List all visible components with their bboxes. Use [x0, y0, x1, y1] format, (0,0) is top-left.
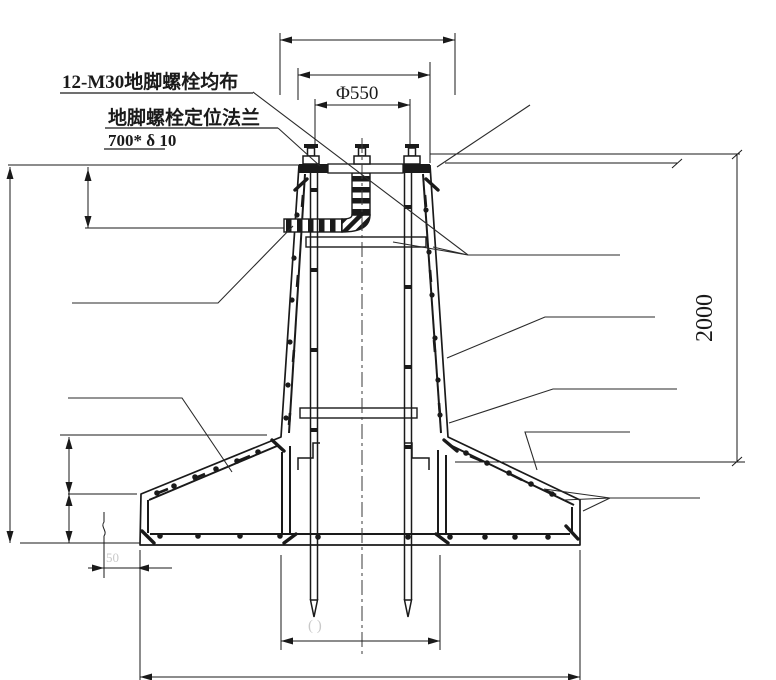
upper-ring-plate	[306, 237, 426, 247]
left-lower-template	[298, 443, 320, 470]
flange-right-section	[403, 164, 430, 173]
flange-left-section	[299, 164, 328, 173]
leader-right-slope	[525, 432, 630, 470]
leader-right-wall-lower	[449, 389, 677, 423]
edge-offset-dim-text: 50	[106, 550, 119, 565]
anchor-bolts-label: 12-M30地脚螺栓均布	[62, 70, 238, 93]
leader-lines	[68, 92, 700, 511]
depth-dim-text: 2000	[692, 294, 718, 342]
conduit-elbow	[342, 215, 370, 232]
cage-plates	[300, 237, 426, 418]
right-wall-rebar	[423, 174, 441, 433]
bolt-circle-dim-text: Φ550	[336, 83, 378, 104]
corner-leader	[437, 105, 530, 167]
rebar-hooks	[142, 179, 578, 543]
leader-right-wall-rebar	[447, 317, 655, 358]
leader-right-slope-rebar	[544, 489, 700, 511]
drawing-canvas: 12-M30地脚螺栓均布 地脚螺栓定位法兰 700* δ 10 Φ550 200…	[0, 0, 776, 680]
foundation-section-drawing: 12-M30地脚螺栓均布 地脚螺栓定位法兰 700* δ 10 Φ550 200…	[0, 0, 776, 680]
ground-reference-lines	[8, 154, 745, 543]
conduit-horizontal	[284, 219, 342, 232]
rebar-dots	[154, 207, 555, 539]
hidden-dim-text: ( )	[308, 618, 322, 634]
flange-size-label: 700* δ 10	[108, 131, 176, 150]
flange-middle	[328, 164, 403, 173]
leader-left-conduit	[72, 226, 293, 303]
flange-label: 地脚螺栓定位法兰	[108, 106, 260, 129]
